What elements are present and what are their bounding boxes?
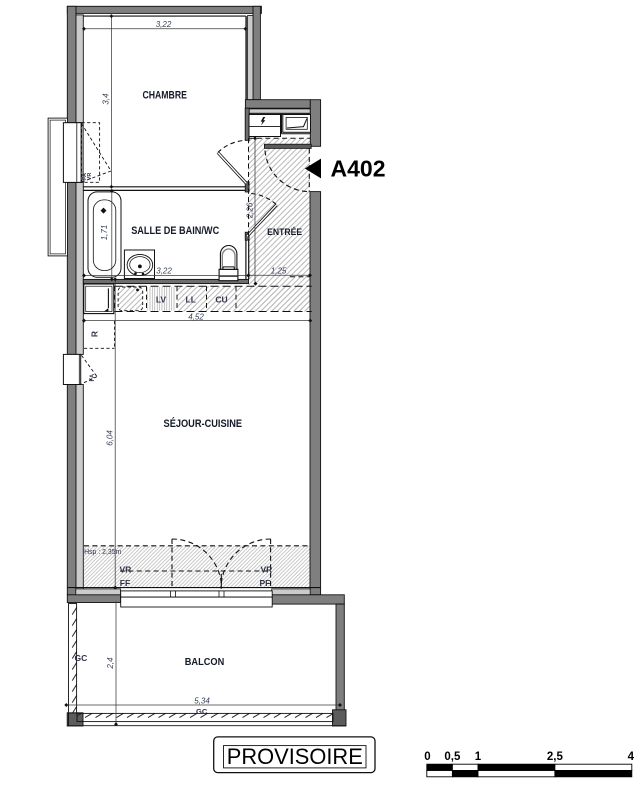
svg-text:5,34: 5,34 — [194, 697, 210, 706]
svg-text:2,26: 2,26 — [245, 202, 254, 219]
svg-text:LL: LL — [186, 295, 196, 305]
svg-text:0: 0 — [424, 751, 430, 763]
svg-text:FF: FF — [120, 578, 130, 588]
svg-text:3,22: 3,22 — [156, 267, 172, 276]
svg-text:SÉJOUR-CUISINE: SÉJOUR-CUISINE — [164, 417, 243, 430]
svg-text:VR: VR — [87, 173, 93, 181]
svg-text:FA: FA — [90, 373, 96, 381]
svg-text:VR: VR — [261, 565, 273, 575]
svg-text:R: R — [90, 331, 100, 337]
svg-text:3,4: 3,4 — [101, 93, 110, 105]
svg-text:VR: VR — [120, 565, 132, 575]
svg-text:6,04: 6,04 — [105, 430, 114, 446]
svg-text:PROVISOIRE: PROVISOIRE — [227, 744, 363, 769]
svg-text:Hsp : 2,35m: Hsp : 2,35m — [84, 547, 121, 556]
svg-text:3,22: 3,22 — [156, 20, 172, 29]
svg-text:4,52: 4,52 — [188, 313, 204, 322]
svg-text:CHAMBRE: CHAMBRE — [142, 90, 187, 102]
svg-text:1,25: 1,25 — [271, 267, 287, 276]
svg-text:SALLE DE BAIN/WC: SALLE DE BAIN/WC — [131, 225, 219, 237]
svg-text:1: 1 — [475, 751, 482, 763]
svg-text:4: 4 — [628, 751, 635, 763]
svg-text:GC: GC — [196, 707, 208, 716]
svg-text:2,4: 2,4 — [106, 657, 115, 670]
svg-text:GC: GC — [75, 653, 88, 663]
svg-text:PF: PF — [260, 578, 271, 588]
svg-text:0,5: 0,5 — [444, 751, 461, 763]
svg-text:BALCON: BALCON — [185, 657, 225, 668]
svg-text:ENTRÉE: ENTRÉE — [267, 227, 302, 237]
svg-text:LV: LV — [156, 295, 167, 305]
svg-text:1,71: 1,71 — [100, 225, 109, 241]
svg-text:A402: A402 — [331, 156, 386, 182]
svg-text:2,5: 2,5 — [547, 751, 564, 763]
svg-text:CU: CU — [215, 295, 227, 305]
